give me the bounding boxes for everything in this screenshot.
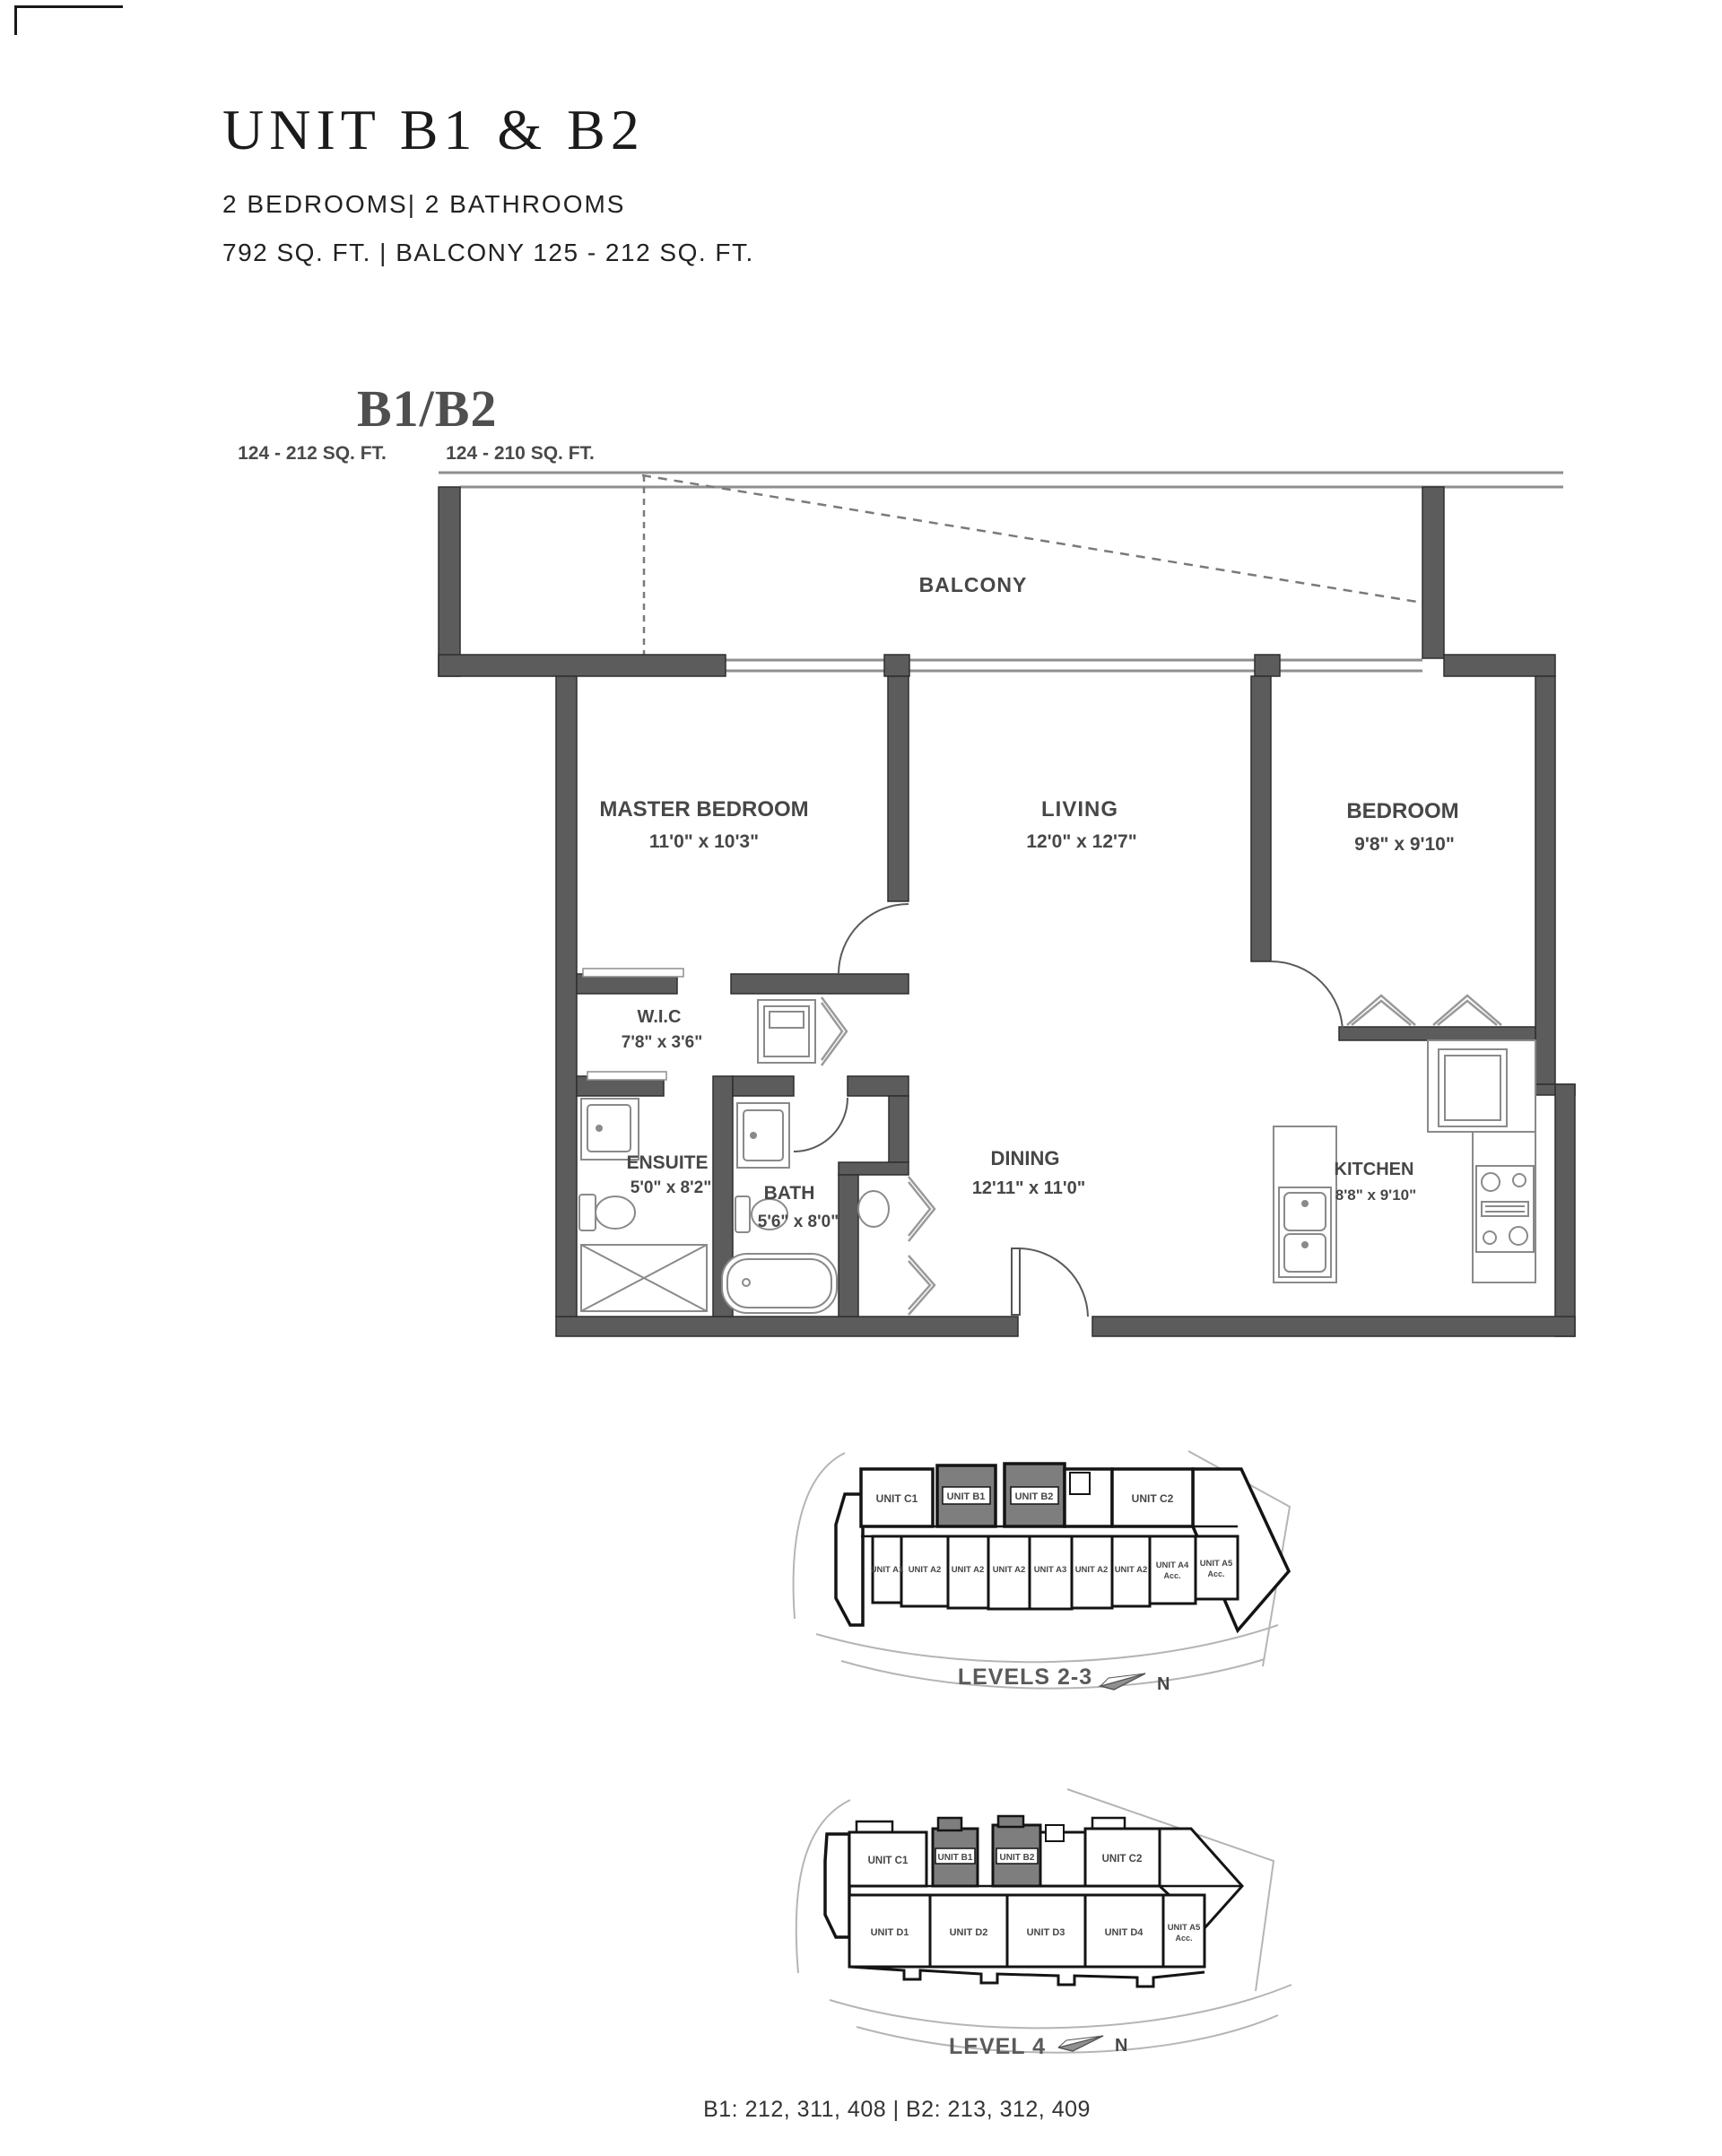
keyplan-levels-2-3: UNIT C1 UNIT B1 UNIT B2 UNIT C2 UNIT A1 …: [789, 1435, 1345, 1704]
door-arcs: [794, 904, 1343, 1317]
room-dining: DINING 12'11" x 11'0": [972, 1147, 1085, 1198]
svg-text:UNIT D2: UNIT D2: [950, 1927, 988, 1938]
svg-text:W.I.C: W.I.C: [638, 1007, 682, 1027]
svg-text:BEDROOM: BEDROOM: [1346, 799, 1458, 823]
svg-text:12'11" x 11'0": 12'11" x 11'0": [972, 1178, 1085, 1198]
room-master: MASTER BEDROOM 11'0" x 10'3": [599, 797, 808, 852]
svg-text:7'8" x 3'6": 7'8" x 3'6": [622, 1033, 702, 1052]
svg-text:5'6" x 8'0": 5'6" x 8'0": [758, 1213, 839, 1231]
bedrooms-bathrooms-line: 2 BEDROOMS| 2 BATHROOMS: [222, 190, 625, 219]
ensuite-sink-icon: [581, 1099, 639, 1160]
svg-text:UNIT B2: UNIT B2: [1015, 1491, 1054, 1502]
balcony-rails: [439, 473, 1563, 671]
svg-text:UNIT C2: UNIT C2: [1132, 1492, 1174, 1505]
svg-text:UNIT A4: UNIT A4: [1156, 1560, 1189, 1570]
svg-text:UNIT C1: UNIT C1: [876, 1492, 918, 1505]
svg-text:UNIT D1: UNIT D1: [871, 1927, 909, 1938]
svg-text:UNIT B2: UNIT B2: [1000, 1853, 1035, 1863]
room-bedroom: BEDROOM 9'8" x 9'10": [1346, 799, 1458, 855]
master-bedroom-door-arc: [839, 904, 909, 974]
fridge-icon: [1439, 1049, 1507, 1126]
svg-text:UNIT A2: UNIT A2: [1115, 1565, 1148, 1575]
ensuite-toilet-icon: [579, 1195, 635, 1230]
bedroom-closet-bifold-icon: [1347, 995, 1501, 1025]
svg-text:5'0" x 8'2": 5'0" x 8'2": [631, 1178, 711, 1197]
bath-sink-icon: [737, 1103, 789, 1168]
svg-text:UNIT A1: UNIT A1: [871, 1565, 904, 1575]
floorplan-page: UNIT B1 & B2 2 BEDROOMS| 2 BATHROOMS 792…: [0, 0, 1722, 2156]
room-wic: W.I.C 7'8" x 3'6": [622, 1007, 702, 1052]
svg-text:UNIT A2: UNIT A2: [909, 1565, 942, 1575]
floorplan-drawing: BALCONY MASTER BEDROOM 11'0" x 10'3" LIV…: [395, 430, 1614, 1381]
svg-text:N: N: [1157, 1674, 1170, 1694]
svg-text:UNIT A5: UNIT A5: [1168, 1923, 1201, 1933]
mechanical-closet-icon: [758, 1000, 815, 1063]
bath-door-arc: [794, 1098, 848, 1152]
ensuite-fixtures: [579, 1099, 707, 1311]
keyplan-level-4: UNIT C1 UNIT B1 UNIT B2 UNIT C2 UNIT D1 …: [789, 1780, 1345, 2085]
stove-icon: [1476, 1166, 1534, 1252]
bedroom-door-arc: [1271, 961, 1343, 1033]
plan-name-heading: B1/B2: [357, 378, 498, 439]
svg-text:9'8" x 9'10": 9'8" x 9'10": [1354, 834, 1455, 855]
svg-text:8'8" x 9'10": 8'8" x 9'10": [1335, 1187, 1416, 1204]
svg-text:MASTER BEDROOM: MASTER BEDROOM: [599, 797, 808, 822]
entry-door-leaf: [1012, 1248, 1020, 1315]
svg-text:Acc.: Acc.: [1163, 1571, 1180, 1580]
unit-numbers-footer: B1: 212, 311, 408 | B2: 213, 312, 409: [502, 2097, 1291, 2123]
svg-text:Acc.: Acc.: [1207, 1569, 1224, 1578]
balcony-extent-dashed-lines: [642, 475, 1422, 673]
svg-text:UNIT B1: UNIT B1: [947, 1491, 986, 1502]
building-stair-shaft: [825, 1834, 849, 1937]
svg-text:UNIT B1: UNIT B1: [938, 1853, 973, 1863]
bath-fixtures: [722, 1103, 889, 1313]
room-ensuite: ENSUITE 5'0" x 8'2": [626, 1152, 711, 1197]
svg-text:ENSUITE: ENSUITE: [626, 1152, 708, 1173]
svg-text:Acc.: Acc.: [1175, 1934, 1192, 1943]
hall-closet-toilet-icon: [858, 1191, 889, 1227]
svg-text:N: N: [1115, 2036, 1127, 2056]
svg-text:DINING: DINING: [991, 1147, 1060, 1169]
svg-text:UNIT A2: UNIT A2: [993, 1565, 1026, 1575]
svg-text:UNIT C1: UNIT C1: [868, 1856, 909, 1866]
double-sink-icon: [1279, 1187, 1331, 1277]
keyplan1-caption: LEVELS 2-3: [958, 1665, 1092, 1690]
bathtub-icon: [722, 1254, 837, 1313]
svg-text:UNIT A3: UNIT A3: [1034, 1565, 1067, 1575]
room-living: LIVING 12'0" x 12'7": [1026, 797, 1136, 852]
page-title: UNIT B1 & B2: [222, 97, 645, 163]
svg-text:UNIT C2: UNIT C2: [1102, 1854, 1143, 1865]
svg-text:11'0" x 10'3": 11'0" x 10'3": [649, 831, 759, 852]
svg-text:KITCHEN: KITCHEN: [1335, 1160, 1414, 1179]
ensuite-shower-icon: [581, 1245, 707, 1311]
page-corner-mark: [14, 5, 123, 35]
entry-door-arc: [1018, 1248, 1088, 1317]
keyplan2-sawtooth-edge: [849, 1967, 1205, 1986]
svg-text:BATH: BATH: [764, 1183, 815, 1204]
svg-text:12'0" x 12'7": 12'0" x 12'7": [1026, 831, 1136, 852]
balcony-label: BALCONY: [919, 573, 1028, 596]
svg-text:UNIT A2: UNIT A2: [952, 1565, 985, 1575]
svg-text:UNIT A5: UNIT A5: [1200, 1559, 1233, 1569]
building-stair-shaft: [836, 1494, 863, 1625]
svg-text:LIVING: LIVING: [1041, 797, 1118, 822]
area-line: 792 SQ. FT. | BALCONY 125 - 212 SQ. FT.: [222, 239, 754, 267]
svg-text:UNIT A2: UNIT A2: [1075, 1565, 1109, 1575]
room-kitchen: KITCHEN 8'8" x 9'10": [1335, 1160, 1417, 1204]
svg-text:UNIT D3: UNIT D3: [1027, 1927, 1065, 1938]
keyplan2-caption: LEVEL 4: [949, 2034, 1046, 2059]
svg-text:UNIT D4: UNIT D4: [1105, 1927, 1144, 1938]
